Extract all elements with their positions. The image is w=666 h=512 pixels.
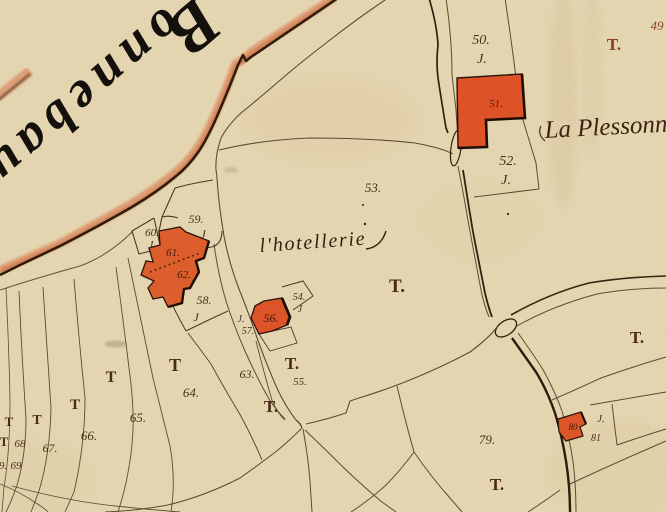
svg-text:J.: J. [597, 413, 605, 425]
svg-text:T: T [106, 369, 117, 386]
svg-text:55.: 55. [293, 376, 307, 388]
svg-text:80: 80 [569, 422, 579, 432]
svg-text:J: J [298, 304, 303, 315]
svg-text:54.: 54. [293, 292, 306, 303]
svg-text:65.: 65. [130, 410, 146, 425]
svg-text:52.: 52. [499, 154, 517, 169]
svg-text:T: T [5, 414, 14, 429]
svg-text:T: T [0, 434, 9, 449]
svg-text:59.: 59. [189, 212, 204, 226]
svg-text:64.: 64. [183, 385, 199, 400]
svg-text:79.: 79. [479, 432, 495, 447]
svg-text:J.: J. [501, 173, 511, 188]
svg-text:T.: T. [285, 354, 299, 373]
svg-text:T.: T. [630, 328, 644, 347]
svg-text:67.: 67. [43, 441, 58, 455]
svg-text:57.: 57. [242, 326, 255, 337]
svg-text:T: T [169, 355, 181, 375]
svg-text:56.: 56. [264, 311, 279, 325]
svg-text:69: 69 [11, 460, 23, 472]
svg-text:81: 81 [591, 433, 601, 444]
svg-text:T.: T. [264, 397, 278, 416]
svg-text:68: 68 [15, 438, 27, 450]
svg-text:50.: 50. [472, 33, 490, 48]
svg-text:J: J [193, 310, 199, 324]
svg-text:T: T [32, 413, 42, 428]
svg-text:T.: T. [490, 475, 504, 494]
svg-text:9.: 9. [0, 460, 7, 472]
svg-text:58.: 58. [197, 293, 212, 307]
svg-text:J.: J. [477, 52, 487, 67]
svg-text:66.: 66. [81, 428, 97, 443]
svg-text:61.: 61. [166, 247, 180, 259]
svg-text:T: T [70, 397, 80, 413]
svg-text:53.: 53. [365, 180, 381, 195]
svg-text:49: 49 [651, 18, 665, 33]
svg-text:60.: 60. [145, 227, 159, 239]
svg-text:T.: T. [607, 35, 621, 54]
svg-text:J: J [200, 227, 206, 241]
svg-text:T.: T. [389, 276, 405, 297]
svg-text:63.: 63. [240, 367, 255, 381]
svg-text:62.: 62. [177, 269, 191, 281]
svg-text:J.: J. [238, 314, 245, 325]
svg-text:51.: 51. [489, 98, 503, 110]
